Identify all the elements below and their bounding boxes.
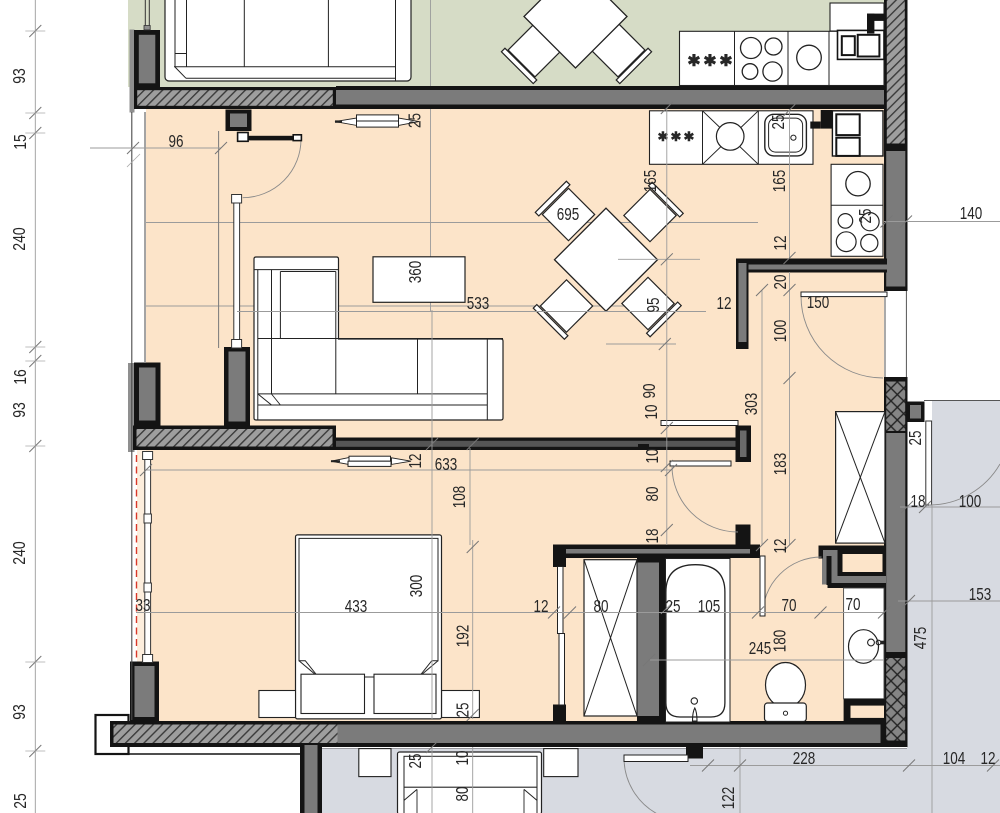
- svg-text:✱: ✱: [687, 53, 700, 70]
- svg-text:25: 25: [405, 754, 425, 769]
- svg-text:100: 100: [770, 320, 790, 343]
- svg-text:153: 153: [969, 584, 992, 604]
- svg-text:360: 360: [405, 261, 425, 284]
- svg-text:✱: ✱: [703, 53, 716, 70]
- svg-text:93: 93: [9, 704, 29, 720]
- svg-text:25: 25: [666, 596, 681, 616]
- svg-text:10: 10: [642, 448, 662, 463]
- svg-text:20: 20: [770, 274, 790, 289]
- svg-text:695: 695: [557, 204, 580, 224]
- svg-text:25: 25: [905, 431, 925, 446]
- svg-text:90: 90: [639, 383, 659, 398]
- svg-text:12: 12: [770, 539, 790, 554]
- svg-text:25: 25: [768, 115, 788, 130]
- svg-text:12: 12: [981, 748, 996, 768]
- svg-text:433: 433: [345, 596, 368, 616]
- svg-text:10: 10: [641, 404, 661, 419]
- svg-text:303: 303: [741, 393, 761, 416]
- svg-text:108: 108: [449, 486, 469, 509]
- svg-text:192: 192: [453, 625, 473, 648]
- svg-text:80: 80: [642, 486, 662, 501]
- svg-text:96: 96: [169, 131, 184, 151]
- svg-text:80: 80: [452, 786, 472, 801]
- svg-text:93: 93: [9, 402, 29, 418]
- svg-text:240: 240: [9, 541, 29, 565]
- svg-text:93: 93: [9, 68, 29, 84]
- svg-text:104: 104: [943, 748, 966, 768]
- svg-text:95: 95: [643, 298, 663, 313]
- svg-text:✱: ✱: [719, 53, 732, 70]
- svg-text:25: 25: [855, 209, 875, 224]
- svg-text:240: 240: [9, 227, 29, 251]
- svg-text:25: 25: [453, 703, 473, 718]
- svg-text:33: 33: [136, 595, 151, 615]
- svg-text:12: 12: [405, 454, 425, 469]
- svg-text:15: 15: [10, 134, 30, 150]
- svg-text:165: 165: [769, 170, 789, 193]
- svg-text:183: 183: [770, 453, 790, 476]
- svg-text:475: 475: [910, 627, 930, 650]
- svg-text:25: 25: [10, 793, 30, 809]
- svg-text:150: 150: [807, 292, 830, 312]
- svg-text:16: 16: [10, 369, 30, 385]
- svg-text:245: 245: [749, 638, 772, 658]
- svg-text:70: 70: [846, 594, 861, 614]
- svg-text:12: 12: [534, 596, 549, 616]
- svg-text:165: 165: [640, 170, 660, 193]
- svg-text:633: 633: [435, 454, 458, 474]
- svg-text:105: 105: [698, 596, 721, 616]
- svg-text:10: 10: [452, 750, 472, 765]
- svg-text:300: 300: [406, 575, 426, 598]
- svg-text:140: 140: [960, 203, 983, 223]
- svg-text:12: 12: [717, 293, 732, 313]
- svg-text:25: 25: [405, 113, 425, 128]
- svg-text:18: 18: [911, 491, 926, 511]
- svg-text:18: 18: [642, 529, 662, 544]
- svg-text:70: 70: [782, 595, 797, 615]
- svg-text:100: 100: [959, 491, 982, 511]
- svg-text:122: 122: [718, 787, 738, 810]
- svg-text:80: 80: [594, 596, 609, 616]
- svg-text:✱: ✱: [671, 129, 682, 144]
- svg-text:180: 180: [770, 630, 790, 653]
- svg-text:228: 228: [793, 748, 816, 768]
- svg-text:533: 533: [467, 293, 490, 313]
- svg-text:✱: ✱: [684, 129, 695, 144]
- svg-text:12: 12: [770, 236, 790, 251]
